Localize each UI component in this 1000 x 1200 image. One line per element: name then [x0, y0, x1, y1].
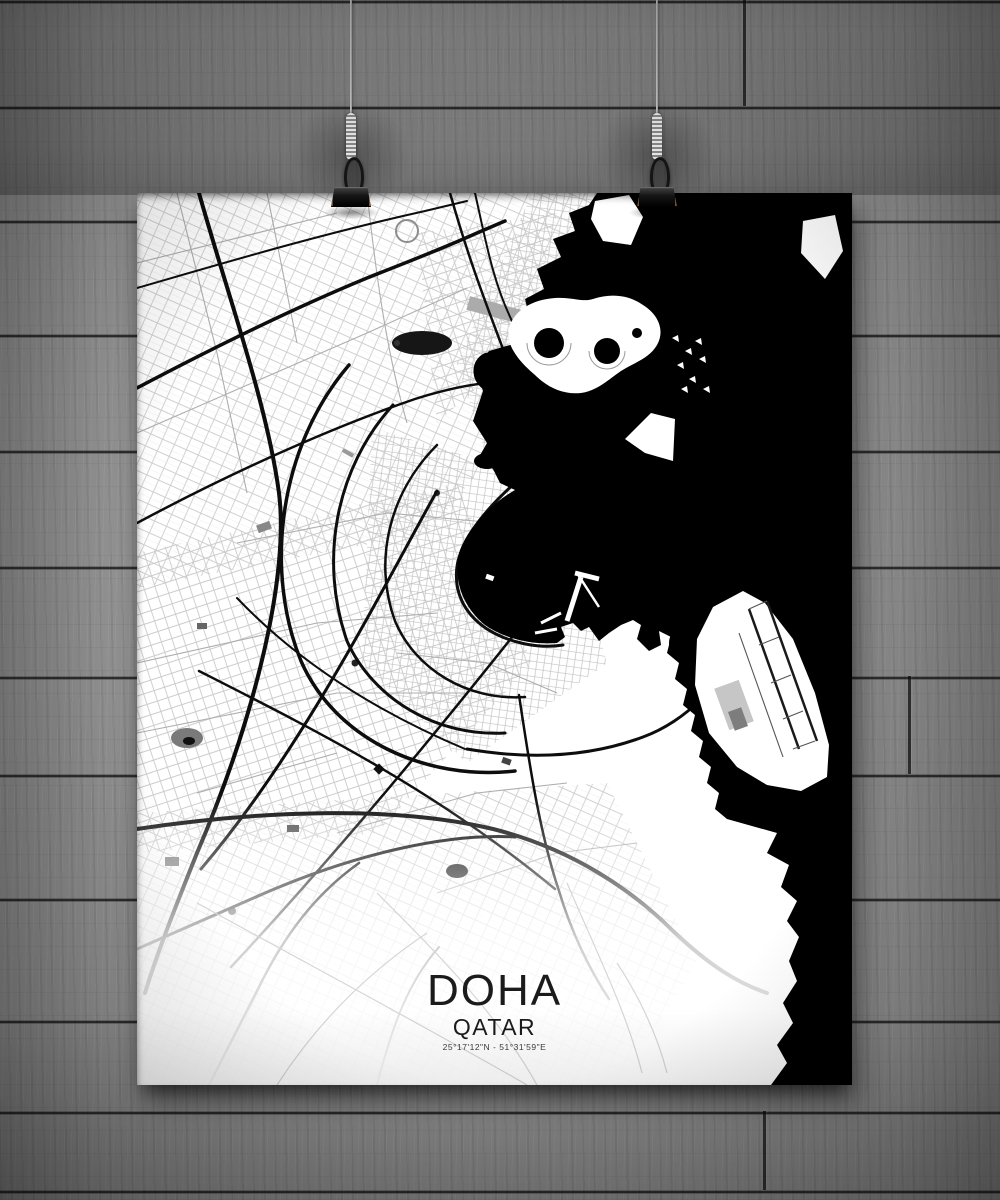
map-poster: DOHA QATAR 25°17'12"N - 51°31'59"E: [137, 193, 852, 1085]
photo-scene: DOHA QATAR 25°17'12"N - 51°31'59"E: [0, 0, 1000, 1200]
left-hanger: [321, 0, 381, 230]
wall-vertical-seam: [908, 676, 911, 774]
binder-clip-right: [637, 187, 677, 207]
spring-coil: [652, 113, 662, 160]
poster-title-block: DOHA QATAR 25°17'12"N - 51°31'59"E: [137, 969, 852, 1052]
clip-shadow: [321, 205, 381, 220]
hanging-string: [350, 0, 352, 116]
binder-clip-left: [331, 187, 371, 207]
doha-city-map: [137, 193, 852, 1085]
clip-shadow: [627, 205, 687, 220]
wall-seam: [0, 1190, 1000, 1194]
right-hanger: [627, 0, 687, 230]
wall-vertical-seam: [763, 1111, 766, 1190]
poster-title: DOHA: [137, 969, 852, 1013]
poster-coordinates: 25°17'12"N - 51°31'59"E: [137, 1043, 852, 1052]
poster-subtitle: QATAR: [137, 1016, 852, 1039]
wall-seam: [0, 0, 1000, 4]
wall-seam: [0, 1111, 1000, 1115]
wall-shadow-band: [0, 30, 1000, 195]
spring-coil: [346, 113, 356, 160]
hanging-string: [656, 0, 658, 116]
